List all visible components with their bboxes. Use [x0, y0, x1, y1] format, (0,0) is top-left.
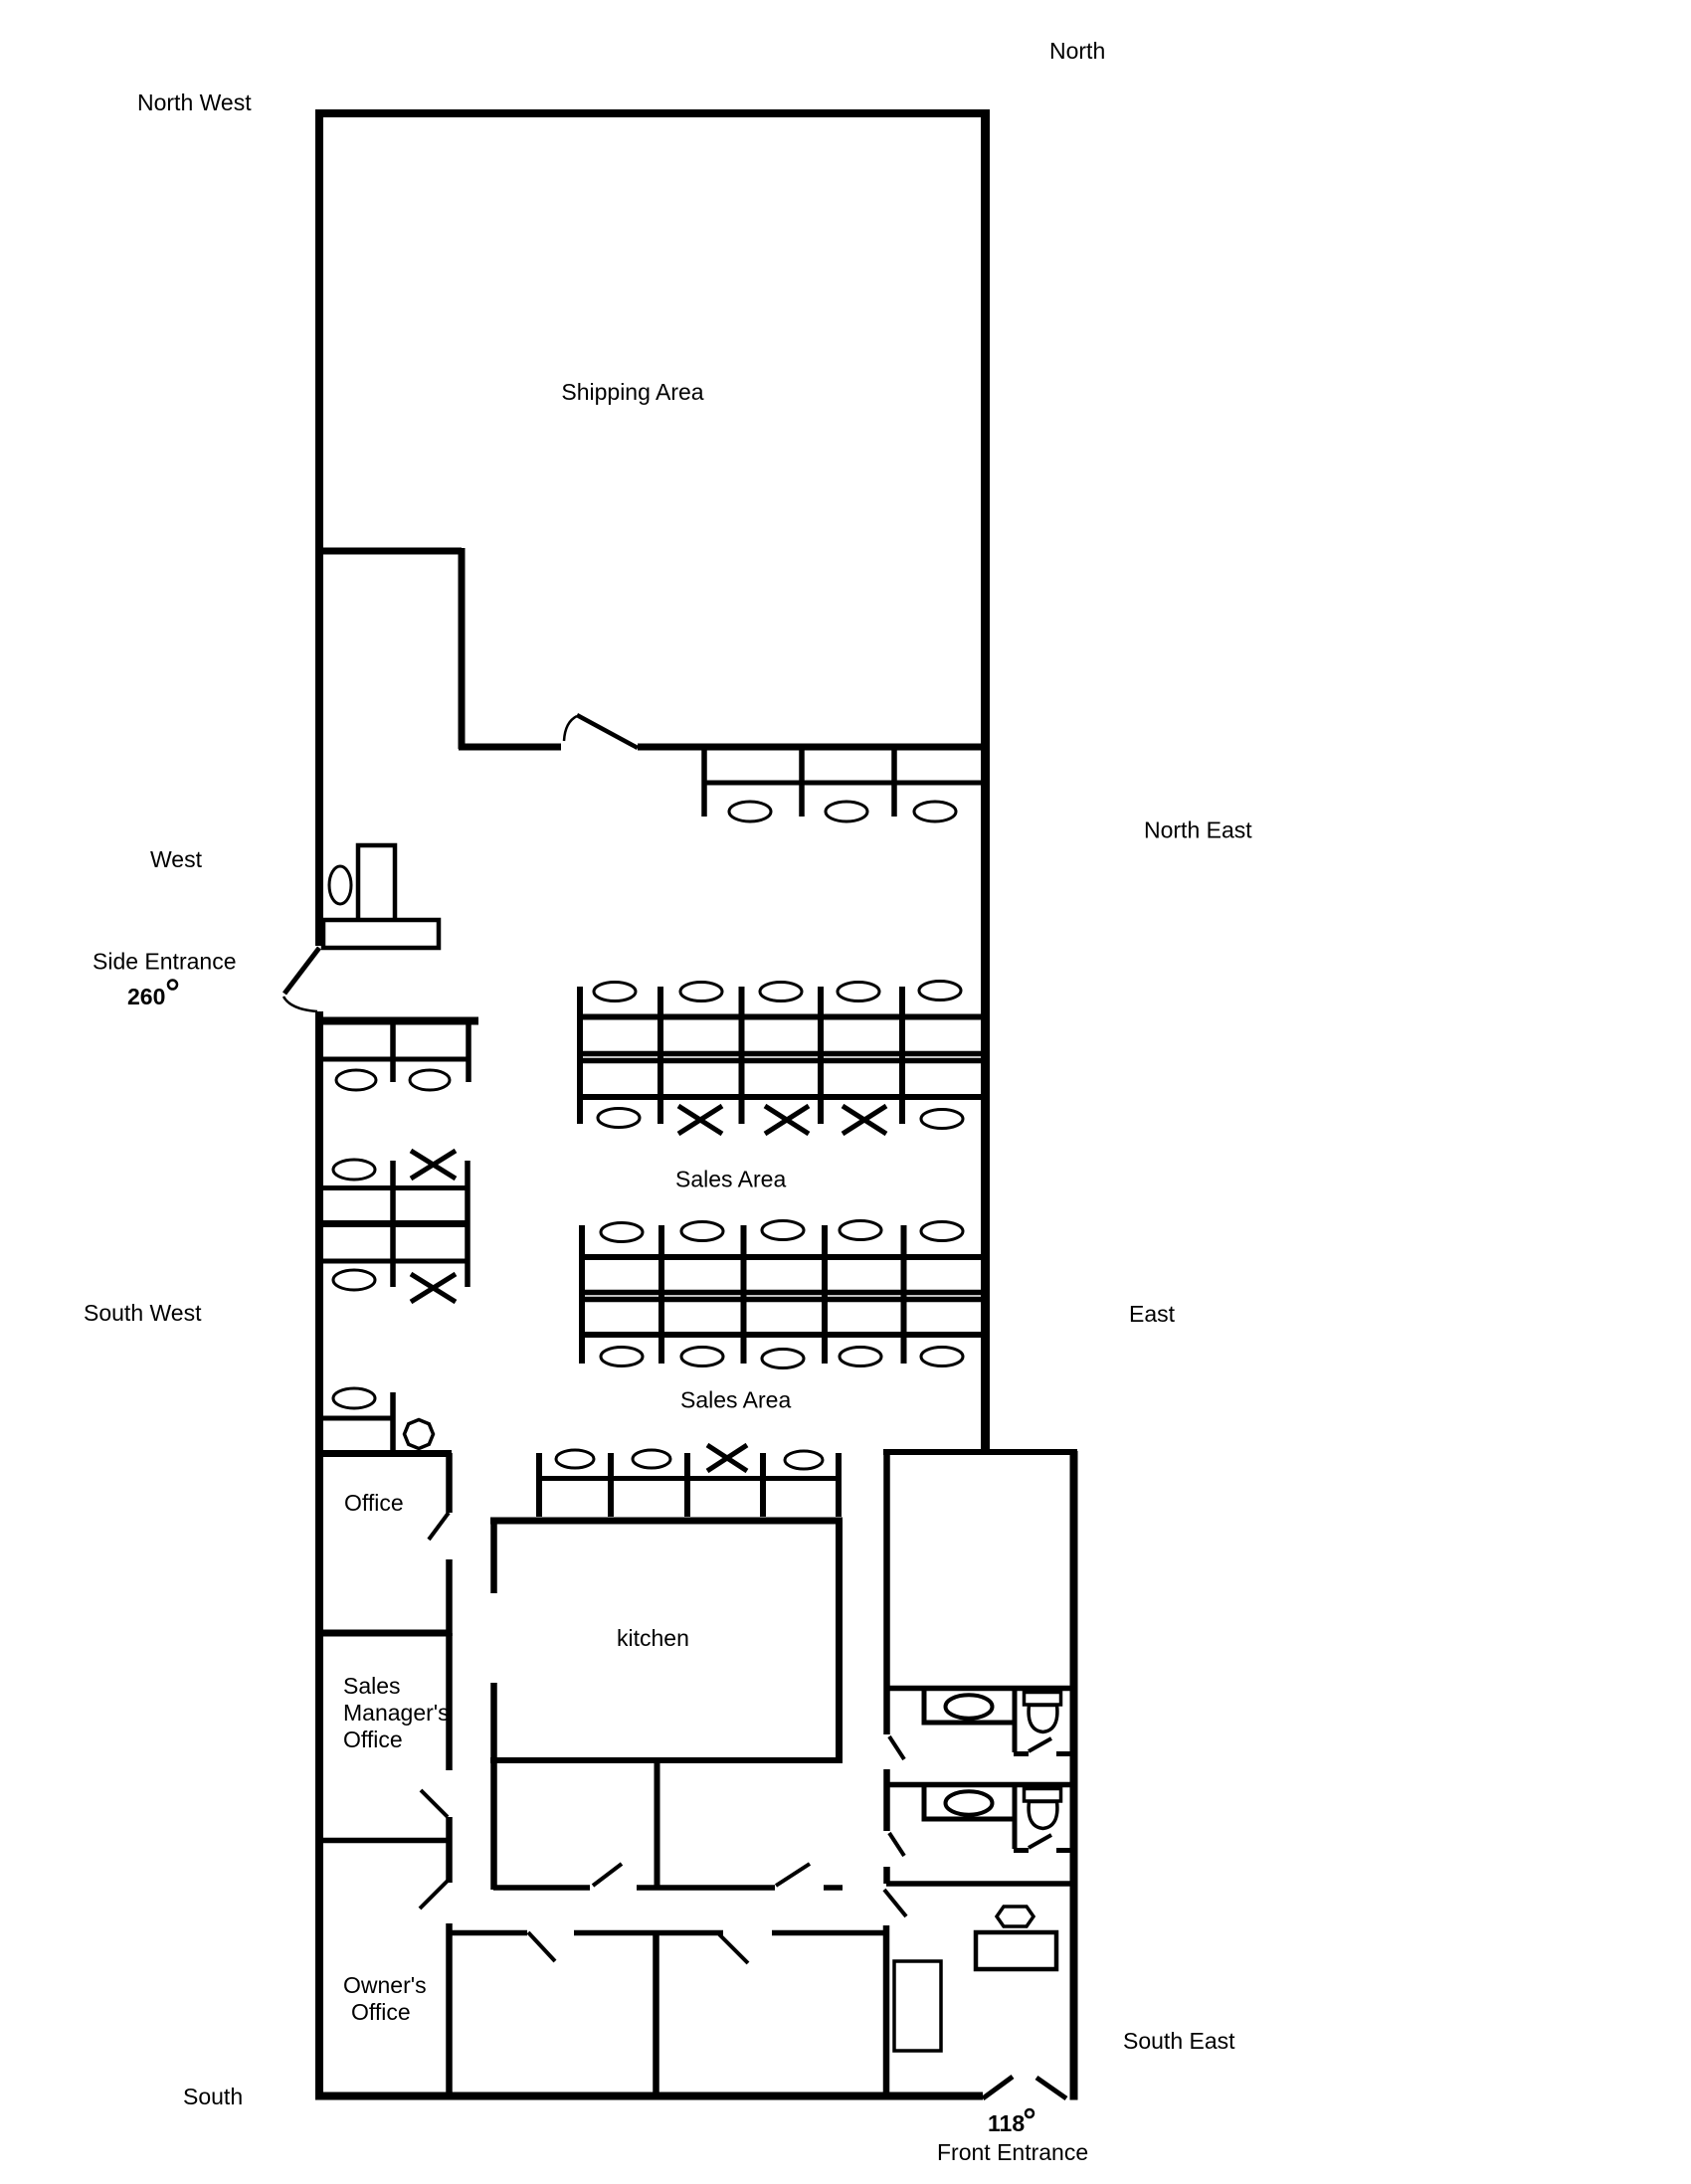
- svg-text:kitchen: kitchen: [617, 1625, 689, 1651]
- svg-text:260: 260: [127, 984, 165, 1009]
- svg-text:South: South: [183, 2084, 243, 2109]
- svg-text:South West: South West: [84, 1300, 202, 1326]
- svg-text:North East: North East: [1144, 818, 1252, 843]
- svg-text:North: North: [1049, 38, 1105, 64]
- svg-text:Shipping Area: Shipping Area: [561, 379, 703, 405]
- svg-text:Side Entrance: Side Entrance: [93, 949, 236, 975]
- svg-text:Sales Area: Sales Area: [675, 1167, 786, 1192]
- svg-text:Front Entrance: Front Entrance: [937, 2139, 1088, 2165]
- svg-text:Sales Area: Sales Area: [680, 1387, 791, 1413]
- svg-text:West: West: [150, 846, 203, 872]
- svg-text:Office: Office: [344, 1490, 404, 1516]
- svg-text:Office: Office: [351, 1999, 411, 2025]
- svg-text:Office: Office: [343, 1727, 403, 1752]
- svg-text:East: East: [1129, 1301, 1176, 1327]
- svg-text:118: 118: [988, 2110, 1025, 2136]
- svg-text:Sales: Sales: [343, 1673, 401, 1699]
- svg-text:North West: North West: [137, 90, 252, 115]
- svg-text:Manager's: Manager's: [343, 1700, 450, 1726]
- svg-text:Owner's: Owner's: [343, 1972, 427, 1998]
- svg-text:South East: South East: [1123, 2028, 1235, 2054]
